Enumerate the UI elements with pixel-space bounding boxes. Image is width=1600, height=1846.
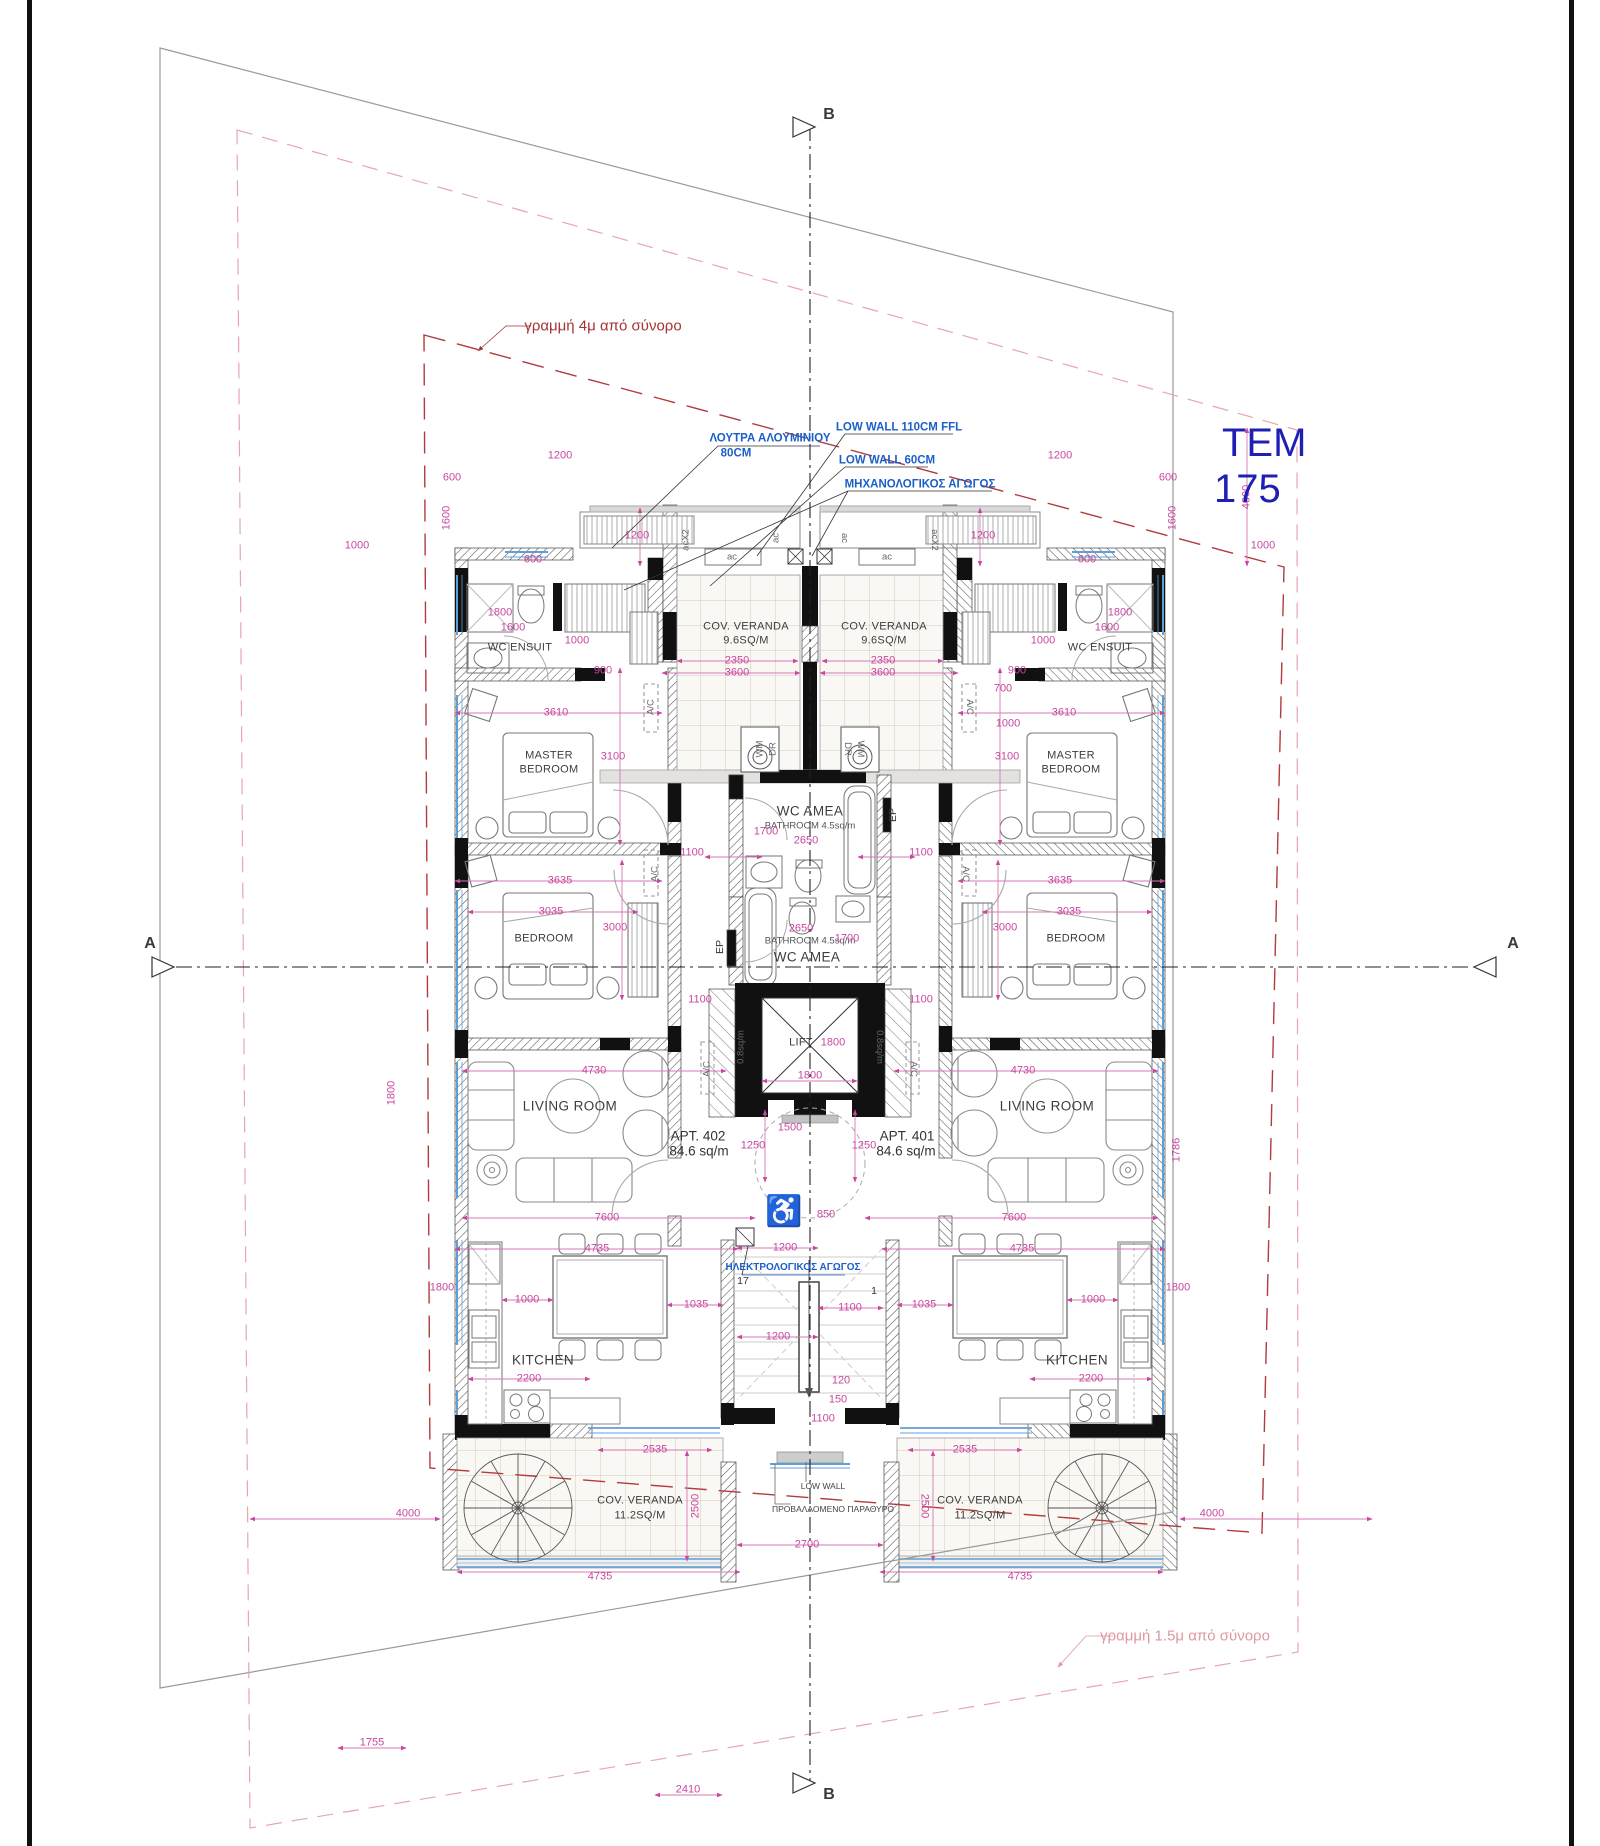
veranda-bottom [457, 1428, 723, 1568]
kitchen-furniture [468, 1234, 667, 1424]
plot-label-number: 175 [1214, 466, 1306, 512]
page-frame [27, 0, 1574, 1846]
wc-ensuit-fixtures [467, 552, 658, 680]
plot-label-tem: TEM [1222, 420, 1306, 466]
living-room-furniture [468, 1051, 669, 1216]
plot-label: TEM 175 [1222, 420, 1306, 512]
floor-plan-sheet: γραμμή 4μ από σύνορογραμμή 1.5μ από σύνο… [0, 0, 1600, 1846]
section-marker-b-bottom [793, 1773, 815, 1793]
section-marker-b-top [793, 117, 815, 137]
bedroom-furniture [465, 850, 668, 999]
section-marker-a-left [152, 957, 174, 977]
master-bedroom-furniture [465, 684, 668, 845]
section-marker-a-right [1474, 957, 1496, 977]
floor-plan-canvas [0, 0, 1600, 1846]
